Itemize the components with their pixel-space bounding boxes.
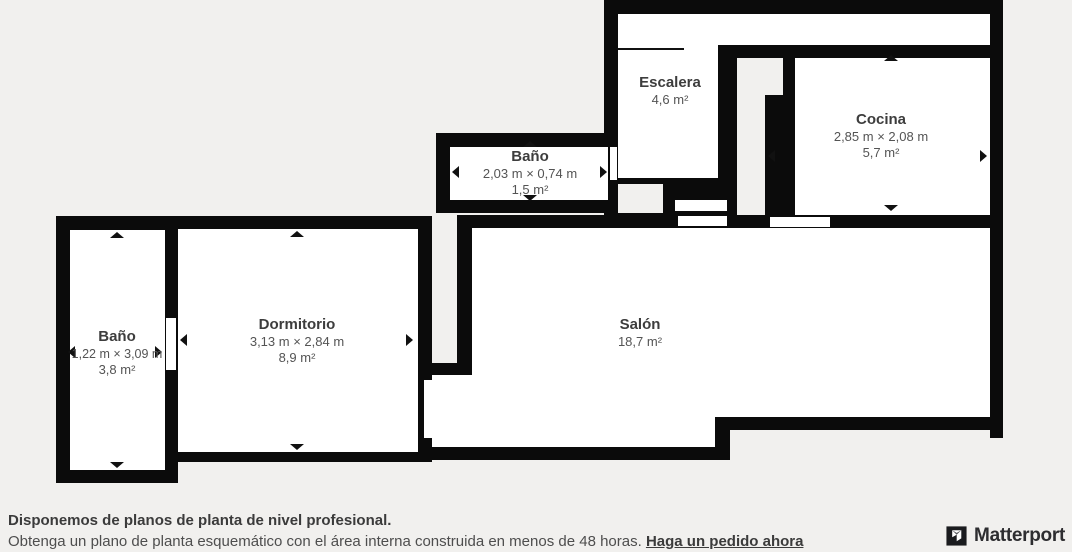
dim-arrow-right-icon xyxy=(406,334,413,346)
room-dimensions: 1,22 m × 3,09 m xyxy=(57,346,177,362)
room-area: 5,7 m² xyxy=(791,145,971,161)
room-name: Salón xyxy=(565,316,715,333)
matterport-logo[interactable]: Matterport xyxy=(945,524,1065,547)
dim-arrow-up-icon xyxy=(523,141,537,147)
wall xyxy=(783,58,795,95)
dim-arrow-up-icon xyxy=(110,232,124,238)
footer-body-text: Obtenga un plano de planta esquemático c… xyxy=(8,533,646,550)
window-opening xyxy=(424,380,432,438)
room-area: 8,9 m² xyxy=(212,350,382,366)
floorplan-canvas: Escalera 4,6 m² Baño 2,03 m × 0,74 m 1,5… xyxy=(0,0,1072,552)
dim-arrow-left-icon xyxy=(180,334,187,346)
room-dimensions: 2,85 m × 2,08 m xyxy=(791,129,971,145)
room-name: Baño xyxy=(445,148,615,165)
wall xyxy=(715,417,1003,430)
room-area: 4,6 m² xyxy=(605,92,735,108)
window-opening xyxy=(770,217,830,227)
room-area: 18,7 m² xyxy=(565,334,715,350)
dim-arrow-down-icon xyxy=(110,462,124,468)
stairwell-void xyxy=(765,58,783,95)
room-name: Dormitorio xyxy=(212,316,382,333)
footer-body: Obtenga un plano de planta esquemático c… xyxy=(8,531,828,552)
window-opening xyxy=(675,200,727,211)
room-label-cocina: Cocina 2,85 m × 2,08 m 5,7 m² xyxy=(791,111,971,161)
wall xyxy=(457,215,1003,228)
room-label-escalera: Escalera 4,6 m² xyxy=(605,74,735,108)
room-name: Cocina xyxy=(791,111,971,128)
stair-landing-void xyxy=(618,184,663,213)
room-name: Baño xyxy=(57,328,177,345)
wall xyxy=(416,447,717,460)
dim-arrow-right-icon xyxy=(980,150,987,162)
matterport-logo-text: Matterport xyxy=(974,525,1065,547)
room-floor-salon xyxy=(472,228,990,417)
footer-headline: Disponemos de planos de planta de nivel … xyxy=(8,510,828,531)
room-floor-salon xyxy=(472,417,715,447)
wall xyxy=(604,0,1003,14)
dim-arrow-down-icon xyxy=(884,205,898,211)
room-dimensions: 2,03 m × 0,74 m xyxy=(445,166,615,182)
room-area: 3,8 m² xyxy=(57,362,177,378)
dim-arrow-up-icon xyxy=(290,231,304,237)
room-floor-salon xyxy=(432,375,472,447)
matterport-cube-icon xyxy=(945,524,968,547)
stair-tread-line xyxy=(618,48,684,50)
room-dimensions: 3,13 m × 2,84 m xyxy=(212,334,382,350)
room-label-dormitorio: Dormitorio 3,13 m × 2,84 m 8,9 m² xyxy=(212,316,382,366)
room-label-bano-top: Baño 2,03 m × 0,74 m 1,5 m² xyxy=(445,148,615,198)
dim-arrow-up-icon xyxy=(884,55,898,61)
room-area: 1,5 m² xyxy=(445,182,615,198)
footer: Disponemos de planos de planta de nivel … xyxy=(8,510,828,552)
stairwell-void xyxy=(737,58,765,215)
dim-arrow-down-icon xyxy=(290,444,304,450)
order-now-link[interactable]: Haga un pedido ahora xyxy=(646,533,804,550)
room-label-salon: Salón 18,7 m² xyxy=(565,316,715,350)
window-opening xyxy=(678,216,727,226)
dim-arrow-left-icon xyxy=(768,150,775,162)
room-name: Escalera xyxy=(605,74,735,91)
room-label-bano-left: Baño 1,22 m × 3,09 m 3,8 m² xyxy=(57,328,177,378)
wall xyxy=(457,215,472,375)
wall xyxy=(432,363,457,375)
